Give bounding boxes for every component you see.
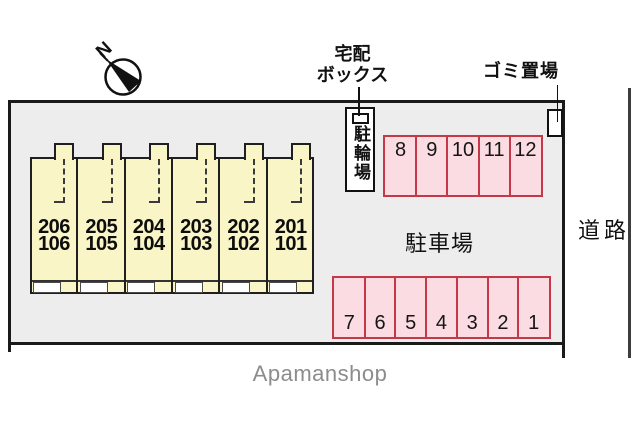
porch	[33, 282, 61, 293]
unit-number-lower: 104	[125, 236, 173, 253]
entrance-tab	[102, 143, 122, 160]
unit-number-lower: 103	[172, 236, 220, 253]
stair-dashed-line	[253, 159, 255, 203]
delivery-box-leader-line	[358, 87, 360, 116]
parking-space-number: 9	[416, 139, 447, 162]
parking-space-number: 10	[447, 139, 478, 162]
stair-dashed-line	[158, 159, 160, 203]
unit-number: 205 105	[77, 219, 125, 253]
delivery-box-label-line1: 宅配	[310, 44, 395, 65]
unit-number: 201 101	[267, 219, 315, 253]
unit-number-lower: 102	[219, 236, 267, 253]
parking-row-bottom: 7 6 5 4 3 2 1	[332, 276, 551, 339]
parking-lot-label: 駐車場	[405, 226, 474, 258]
parking-space-number: 7	[334, 312, 365, 335]
entrance-tab	[291, 143, 311, 160]
stair-dashed-line	[300, 159, 302, 203]
porch	[269, 282, 297, 293]
delivery-box-label-line2: ボックス	[310, 65, 395, 86]
parking-space-number: 6	[365, 312, 396, 335]
stair-dashed-line	[244, 201, 254, 203]
porch	[222, 282, 250, 293]
parking-space-number: 1	[518, 312, 549, 335]
delivery-box-label: 宅配 ボックス	[310, 44, 395, 86]
parking-space-number: 5	[395, 312, 426, 335]
unit-number: 206 106	[30, 219, 78, 253]
stair-dashed-line	[149, 201, 159, 203]
porch	[127, 282, 155, 293]
stair-dashed-line	[205, 159, 207, 203]
porch	[175, 282, 203, 293]
boundary-extension-left	[8, 345, 11, 352]
svg-text:N: N	[92, 38, 116, 63]
brand-watermark: Apamanshop	[0, 361, 640, 387]
unit-number-lower: 106	[30, 236, 78, 253]
entrance-tab	[244, 143, 264, 160]
stair-dashed-line	[111, 159, 113, 203]
parking-space-number: 8	[385, 139, 416, 162]
garbage-area-label: ゴミ置場	[483, 61, 559, 82]
stair-dashed-line	[54, 201, 64, 203]
porch	[80, 282, 108, 293]
unit-number-lower: 101	[267, 236, 315, 253]
parking-space-number: 12	[510, 139, 541, 162]
entrance-tab	[54, 143, 74, 160]
entrance-tab	[149, 143, 169, 160]
garbage-area-box	[547, 109, 563, 137]
north-compass-icon: N	[88, 36, 160, 108]
garbage-leader-line	[557, 85, 559, 122]
parking-space-number: 3	[457, 312, 488, 335]
stair-dashed-line	[63, 159, 65, 203]
unit-number-lower: 105	[77, 236, 125, 253]
bicycle-parking-label: 駐輪場	[347, 125, 373, 182]
unit-number: 202 102	[219, 219, 267, 253]
entrance-tab	[196, 143, 216, 160]
parking-space-number: 11	[479, 139, 510, 162]
parking-space-number: 4	[426, 312, 457, 335]
unit-number: 204 104	[125, 219, 173, 253]
unit-number: 203 103	[172, 219, 220, 253]
bicycle-parking-box: 駐輪場	[345, 107, 375, 192]
boundary-extension-right	[562, 345, 565, 358]
parking-space-number: 2	[488, 312, 519, 335]
stair-dashed-line	[196, 201, 206, 203]
stair-dashed-line	[291, 201, 301, 203]
delivery-box-icon	[352, 113, 369, 124]
road-label: 道路	[578, 213, 630, 245]
stair-dashed-line	[102, 201, 112, 203]
parking-row-top: 8 9 10 11 12	[383, 135, 543, 197]
